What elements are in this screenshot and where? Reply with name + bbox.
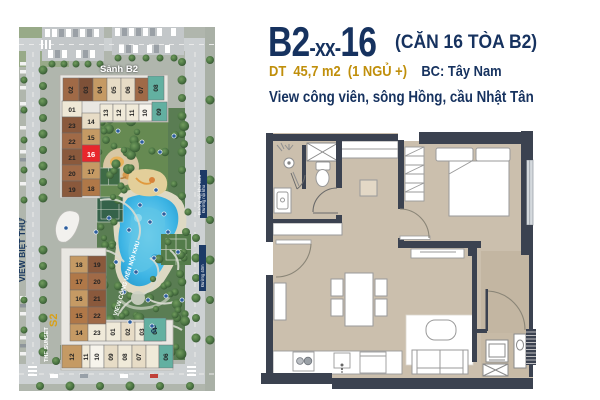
svg-text:02: 02 bbox=[68, 86, 75, 94]
svg-text:14: 14 bbox=[75, 330, 83, 337]
svg-text:07: 07 bbox=[138, 86, 145, 94]
svg-text:Đường 40m: Đường 40m bbox=[200, 264, 205, 287]
svg-text:19: 19 bbox=[68, 187, 76, 194]
svg-text:09: 09 bbox=[108, 353, 115, 361]
svg-text:22: 22 bbox=[93, 313, 101, 320]
svg-text:03: 03 bbox=[83, 86, 90, 94]
svg-text:09: 09 bbox=[156, 108, 163, 116]
svg-text:06: 06 bbox=[125, 86, 132, 94]
svg-text:12: 12 bbox=[69, 353, 76, 361]
svg-text:04: 04 bbox=[97, 86, 104, 94]
svg-text:17: 17 bbox=[87, 169, 95, 176]
svg-text:06: 06 bbox=[163, 353, 170, 361]
svg-text:21: 21 bbox=[93, 296, 101, 303]
svg-text:THE SUNSET: THE SUNSET bbox=[44, 327, 50, 362]
svg-text:19: 19 bbox=[93, 262, 101, 269]
svg-text:VIEW BIỆT THỰ: VIEW BIỆT THỰ bbox=[19, 217, 27, 282]
svg-text:Sảnh B2: Sảnh B2 bbox=[100, 64, 138, 75]
svg-text:22: 22 bbox=[68, 139, 76, 146]
svg-text:10: 10 bbox=[142, 109, 149, 117]
svg-text:S2: S2 bbox=[48, 314, 60, 327]
svg-text:05: 05 bbox=[111, 86, 118, 94]
svg-text:08: 08 bbox=[122, 353, 129, 361]
svg-text:08: 08 bbox=[153, 84, 160, 92]
svg-text:10: 10 bbox=[94, 353, 101, 361]
svg-text:01: 01 bbox=[110, 328, 117, 336]
svg-text:13: 13 bbox=[103, 109, 110, 117]
svg-text:03: 03 bbox=[139, 328, 146, 336]
svg-text:14: 14 bbox=[87, 119, 95, 126]
svg-text:20: 20 bbox=[93, 279, 101, 286]
svg-text:11: 11 bbox=[83, 353, 90, 360]
svg-text:11: 11 bbox=[129, 109, 136, 116]
svg-text:18: 18 bbox=[87, 186, 95, 193]
svg-text:12: 12 bbox=[116, 109, 123, 117]
svg-text:16: 16 bbox=[87, 150, 95, 159]
svg-text:20: 20 bbox=[68, 171, 76, 178]
svg-text:18: 18 bbox=[75, 262, 83, 269]
svg-text:01: 01 bbox=[68, 107, 76, 114]
svg-text:23: 23 bbox=[93, 330, 101, 337]
svg-text:23: 23 bbox=[68, 123, 76, 130]
svg-text:15: 15 bbox=[87, 135, 95, 142]
svg-text:02: 02 bbox=[125, 328, 132, 336]
svg-text:15: 15 bbox=[75, 313, 83, 320]
svg-text:Đường nội khu 40m: Đường nội khu 40m bbox=[197, 175, 202, 215]
svg-text:07: 07 bbox=[136, 353, 143, 361]
svg-text:16: 16 bbox=[75, 296, 83, 303]
svg-text:21: 21 bbox=[68, 155, 76, 162]
svg-text:17: 17 bbox=[75, 279, 83, 286]
